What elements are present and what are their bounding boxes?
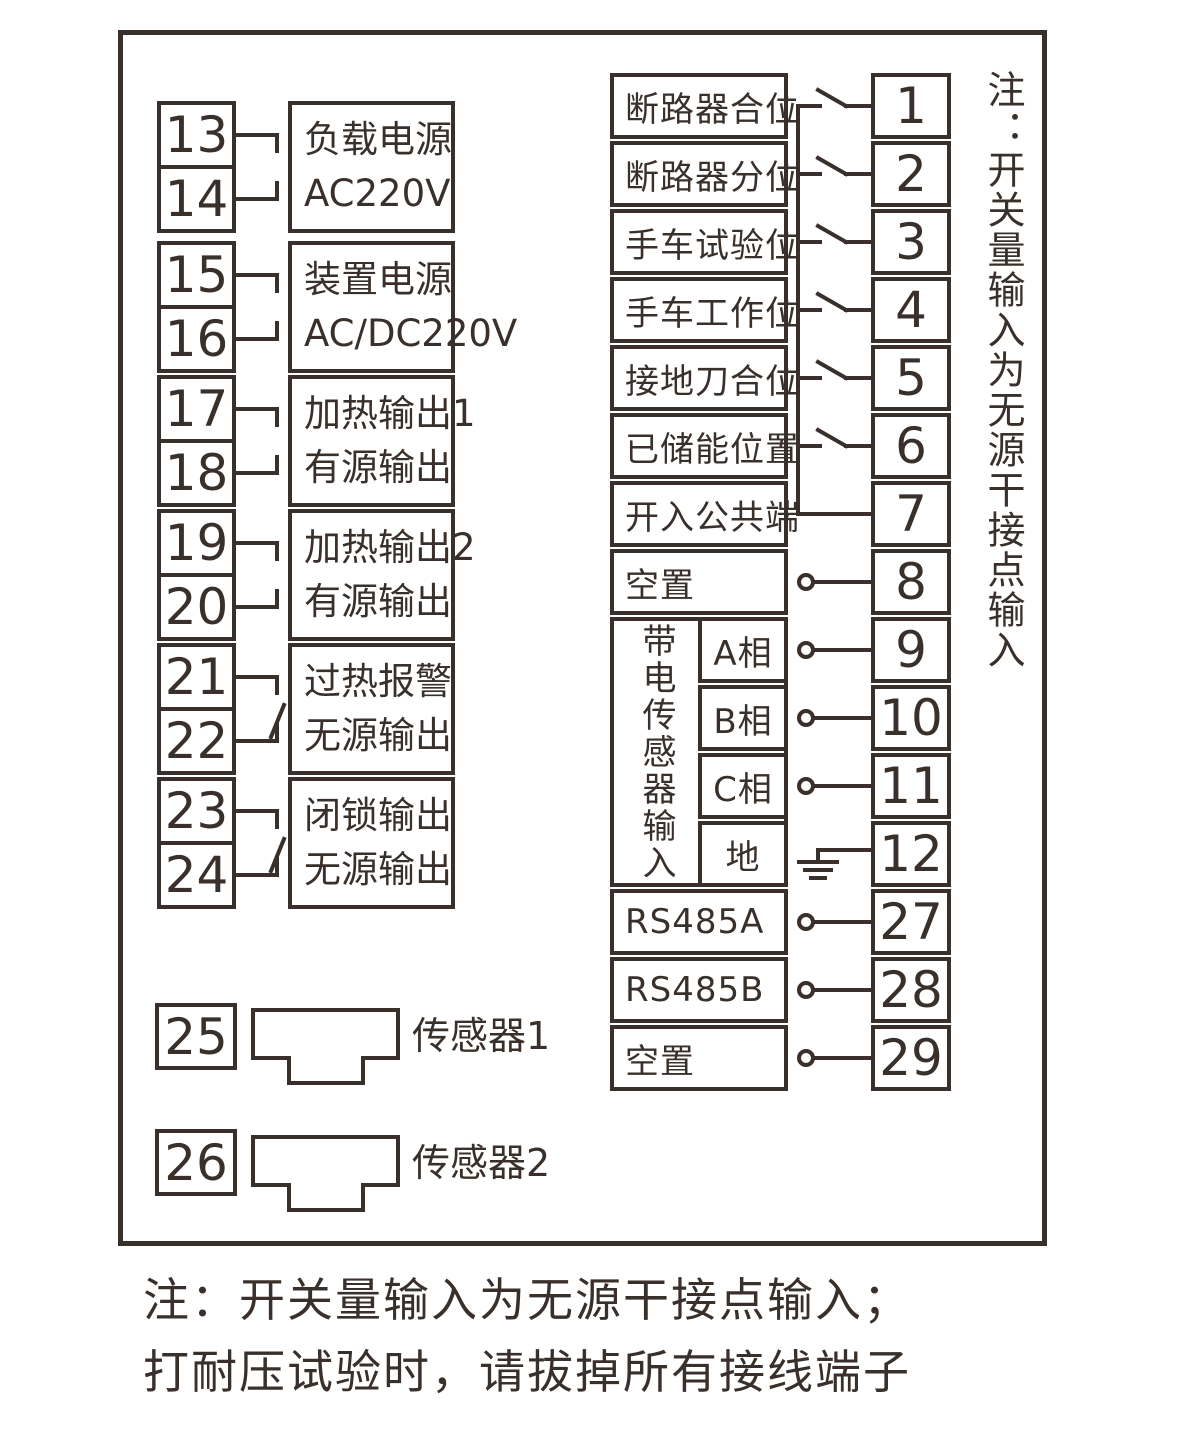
terminal-number: 2: [895, 149, 927, 199]
terminal-number: 28: [879, 965, 943, 1015]
terminal-box-11: 11: [871, 753, 951, 819]
label-line: 负载电源: [304, 113, 452, 167]
row-label: 断路器分位: [625, 150, 800, 199]
terminal-number: 18: [165, 448, 229, 498]
live-sensor-input-group-label: 带电传感器输入: [614, 621, 698, 883]
terminal-box-7: 7: [871, 481, 951, 547]
terminal-box-14: 14: [157, 165, 236, 233]
terminal-box-10: 10: [871, 685, 951, 751]
terminal-number: 10: [879, 693, 943, 743]
row-label: RS485A: [625, 902, 764, 942]
terminal-number: 23: [165, 786, 229, 836]
label-line: 无源输出: [304, 709, 452, 763]
label-line: 有源输出: [304, 441, 452, 495]
overheat-alarm-label-box: 过热报警 无源输出: [288, 643, 455, 775]
terminal-box-2: 2: [871, 141, 951, 207]
terminal-box-9: 9: [871, 617, 951, 683]
lockout-output-label-box: 闭锁输出 无源输出: [288, 777, 455, 909]
row-label: B相: [713, 694, 772, 743]
label-line: AC/DC220V: [304, 307, 517, 361]
row-label: A相: [713, 626, 772, 675]
footer-note-line1: 注：开关量输入为无源干接点输入；: [143, 1274, 911, 1326]
terminal-number: 16: [165, 314, 229, 364]
terminal-box-15: 15: [157, 241, 236, 309]
terminal-number: 11: [879, 761, 943, 811]
side-note-vertical: 注：开关量输入为无源干接点输入: [972, 70, 1022, 790]
wiring-diagram-page: 13 14 15 16 17 18 19 20 21 22 23 24 负载电源…: [0, 0, 1180, 1432]
load-power-label-box: 负载电源 AC220V: [288, 101, 455, 233]
terminal-number: 19: [165, 518, 229, 568]
truck-test-position-label-box: 手车试验位: [610, 209, 788, 275]
terminal-number: 22: [165, 716, 229, 766]
terminal-box-12: 12: [871, 821, 951, 887]
terminal-box-24: 24: [157, 841, 236, 909]
terminal-box-16: 16: [157, 305, 236, 373]
ground-cell: 地: [698, 821, 788, 887]
terminal-box-4: 4: [871, 277, 951, 343]
rs485a-label-box: RS485A: [610, 889, 788, 955]
row-label: 开入公共端: [625, 490, 800, 539]
terminal-box-26: 26: [155, 1129, 237, 1196]
heater-output2-label-box: 加热输出2 有源输出: [288, 509, 455, 641]
phase-b-cell: B相: [698, 685, 788, 751]
terminal-box-6: 6: [871, 413, 951, 479]
terminal-box-20: 20: [157, 573, 236, 641]
terminal-box-3: 3: [871, 209, 951, 275]
footer-note-line2: 打耐压试验时，请拔掉所有接线端子: [143, 1346, 911, 1398]
terminal-number: 20: [165, 582, 229, 632]
terminal-box-13: 13: [157, 101, 236, 169]
terminal-box-29: 29: [871, 1025, 951, 1091]
terminal-box-19: 19: [157, 509, 236, 577]
terminal-box-17: 17: [157, 375, 236, 443]
label-line: 有源输出: [304, 575, 452, 629]
truck-work-position-label-box: 手车工作位: [610, 277, 788, 343]
row-label: 空置: [625, 1034, 695, 1083]
terminal-number: 26: [164, 1138, 228, 1188]
terminal-number: 8: [895, 557, 927, 607]
terminal-number: 3: [895, 217, 927, 267]
terminal-number: 27: [879, 897, 943, 947]
row-label: C相: [713, 762, 773, 811]
terminal-box-22: 22: [157, 707, 236, 775]
row-label: RS485B: [625, 970, 764, 1010]
input-common-label-box: 开入公共端: [610, 481, 788, 547]
row-label: 地: [726, 830, 761, 879]
terminal-number: 5: [895, 353, 927, 403]
energy-stored-label-box: 已储能位置: [610, 413, 788, 479]
spare-label-box-2: 空置: [610, 1025, 788, 1091]
phase-c-cell: C相: [698, 753, 788, 819]
terminal-number: 4: [895, 285, 927, 335]
label-line: AC220V: [304, 167, 450, 221]
terminal-number: 25: [164, 1012, 228, 1062]
terminal-number: 7: [895, 489, 927, 539]
label-line: 过热报警: [304, 655, 452, 709]
terminal-number: 1: [895, 81, 927, 131]
terminal-number: 12: [879, 829, 943, 879]
row-label: 手车试验位: [625, 218, 800, 267]
terminal-number: 9: [895, 625, 927, 675]
terminal-box-18: 18: [157, 439, 236, 507]
heater-output1-label-box: 加热输出1 有源输出: [288, 375, 455, 507]
rs485b-label-box: RS485B: [610, 957, 788, 1023]
row-label: 已储能位置: [625, 422, 800, 471]
terminal-number: 21: [165, 652, 229, 702]
sensor1-label: 传感器1: [412, 1013, 550, 1059]
label-line: 装置电源: [304, 253, 452, 307]
sensor2-label: 传感器2: [412, 1140, 550, 1186]
terminal-number: 15: [165, 250, 229, 300]
row-label: 接地刀合位: [625, 354, 800, 403]
terminal-number: 17: [165, 384, 229, 434]
row-label: 手车工作位: [625, 286, 800, 335]
terminal-box-5: 5: [871, 345, 951, 411]
breaker-closed-label-box: 断路器合位: [610, 73, 788, 139]
row-label: 空置: [625, 558, 695, 607]
terminal-box-27: 27: [871, 889, 951, 955]
terminal-box-21: 21: [157, 643, 236, 711]
terminal-box-1: 1: [871, 73, 951, 139]
terminal-number: 13: [165, 110, 229, 160]
terminal-number: 29: [879, 1033, 943, 1083]
terminal-box-25: 25: [155, 1003, 237, 1070]
terminal-number: 24: [165, 850, 229, 900]
terminal-number: 6: [895, 421, 927, 471]
terminal-box-28: 28: [871, 957, 951, 1023]
terminal-box-23: 23: [157, 777, 236, 845]
row-label: 断路器合位: [625, 82, 800, 131]
label-line: 加热输出1: [304, 387, 476, 441]
label-line: 闭锁输出: [304, 789, 452, 843]
phase-a-cell: A相: [698, 617, 788, 683]
terminal-number: 14: [165, 174, 229, 224]
label-line: 无源输出: [304, 843, 452, 897]
spare-label-box-1: 空置: [610, 549, 788, 615]
breaker-open-label-box: 断路器分位: [610, 141, 788, 207]
terminal-box-8: 8: [871, 549, 951, 615]
device-power-label-box: 装置电源 AC/DC220V: [288, 241, 455, 373]
ground-knife-closed-label-box: 接地刀合位: [610, 345, 788, 411]
label-line: 加热输出2: [304, 521, 476, 575]
